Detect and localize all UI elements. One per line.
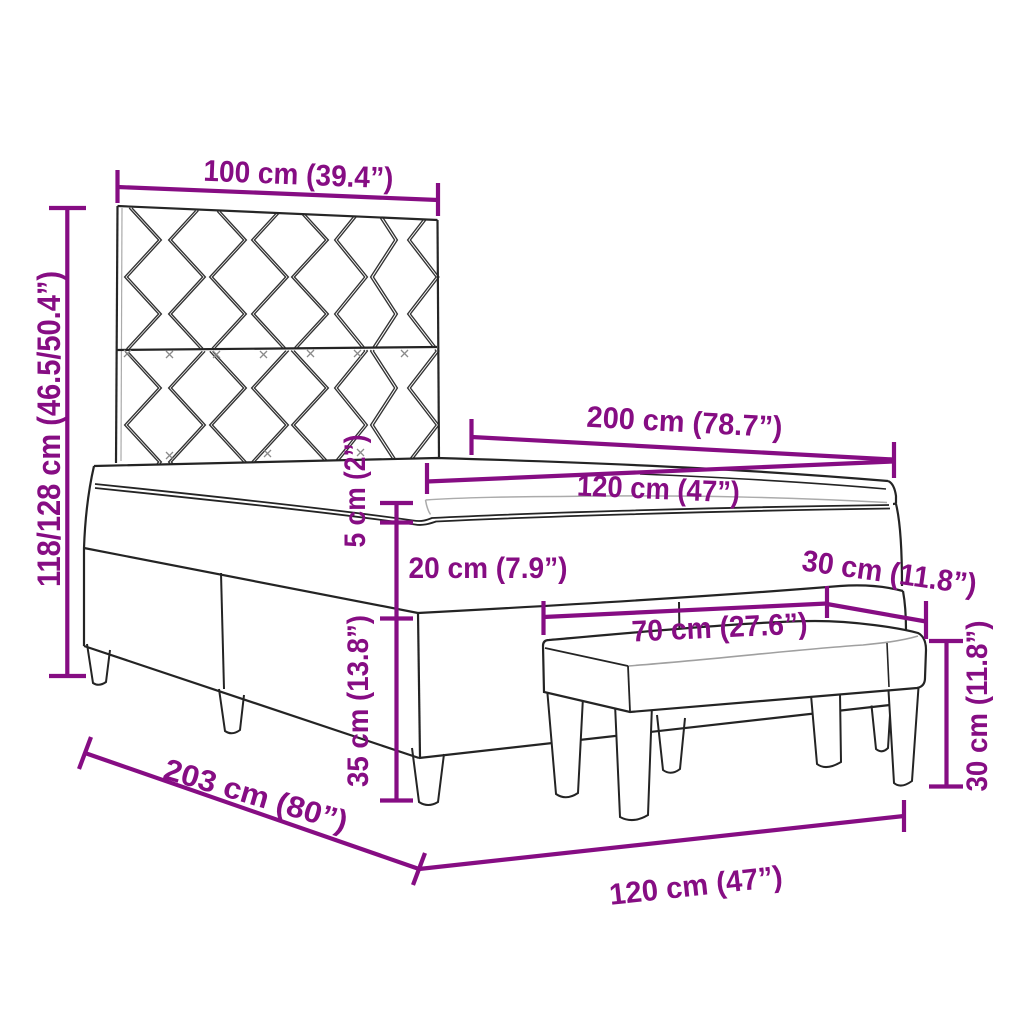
svg-text:35 cm (13.8”): 35 cm (13.8”)	[342, 615, 375, 787]
svg-text:30 cm (11.8”): 30 cm (11.8”)	[961, 621, 994, 792]
svg-text:5 cm (2”): 5 cm (2”)	[339, 435, 372, 548]
svg-text:118/128 cm (46.5/50.4”): 118/128 cm (46.5/50.4”)	[31, 271, 67, 587]
svg-text:20 cm (7.9”): 20 cm (7.9”)	[409, 552, 568, 585]
